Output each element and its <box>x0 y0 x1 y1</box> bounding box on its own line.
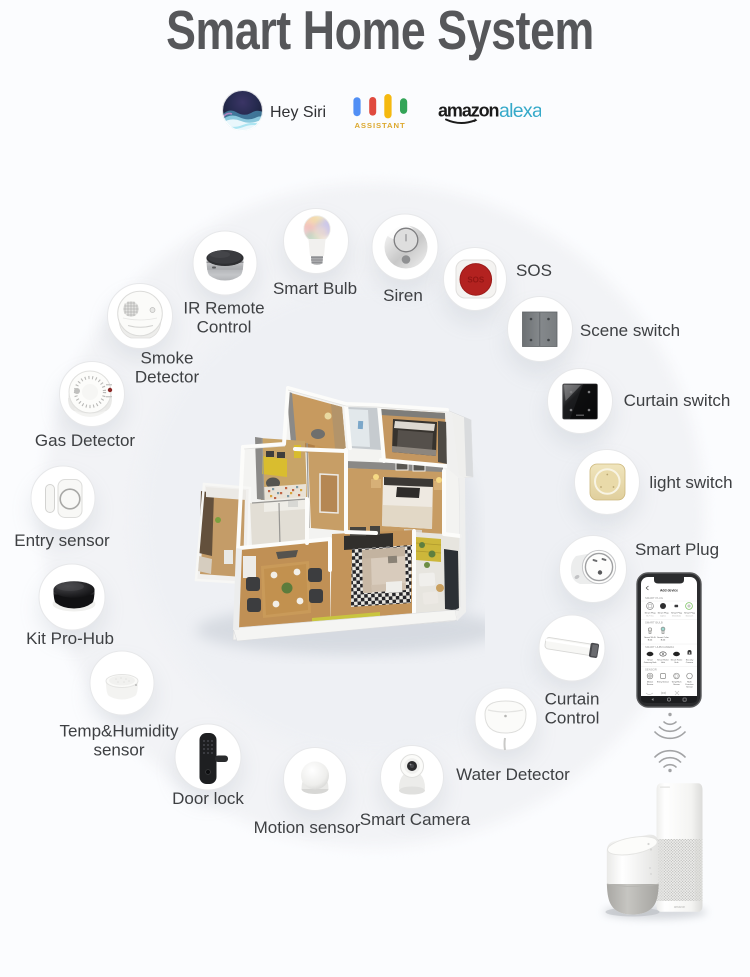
svg-text:Smart Plug: Smart Plug <box>684 612 696 615</box>
svg-text:SMART HUB/CAMERA: SMART HUB/CAMERA <box>645 645 674 649</box>
svg-text:SENSOR: SENSOR <box>645 668 657 672</box>
svg-text:Bulb: Bulb <box>648 639 653 641</box>
svg-text:Smart Wi-Fi: Smart Wi-Fi <box>644 636 656 639</box>
svg-text:amazon: amazon <box>674 905 686 909</box>
svg-text:Wi-Fi Ver.: Wi-Fi Ver. <box>646 616 654 618</box>
svg-text:Smart Color: Smart Color <box>657 636 669 639</box>
svg-text:Add device: Add device <box>660 589 678 593</box>
svg-text:SMART BULB: SMART BULB <box>645 621 663 625</box>
svg-text:SMART PLUG: SMART PLUG <box>645 596 663 600</box>
svg-text:ZigBee: ZigBee <box>660 616 666 618</box>
svg-text:Multi-Mode: Multi-Mode <box>672 615 681 618</box>
svg-text:Smart Plug: Smart Plug <box>645 612 657 615</box>
svg-text:Sensor: Sensor <box>686 686 693 689</box>
svg-text:Bulb: Bulb <box>661 639 666 641</box>
svg-text:Smart Plug: Smart Plug <box>671 612 683 615</box>
svg-text:Entry Sensor: Entry Sensor <box>657 681 669 684</box>
svg-text:SOS: SOS <box>467 276 485 285</box>
svg-text:Sensor: Sensor <box>673 683 680 686</box>
svg-text:Smart Plug: Smart Plug <box>658 612 670 615</box>
svg-text:Camera: Camera <box>686 661 694 664</box>
svg-text:Bluetooth: Bluetooth <box>686 615 694 618</box>
svg-text:Sensor: Sensor <box>647 683 654 686</box>
svg-text:Gateway Hub: Gateway Hub <box>644 661 657 664</box>
